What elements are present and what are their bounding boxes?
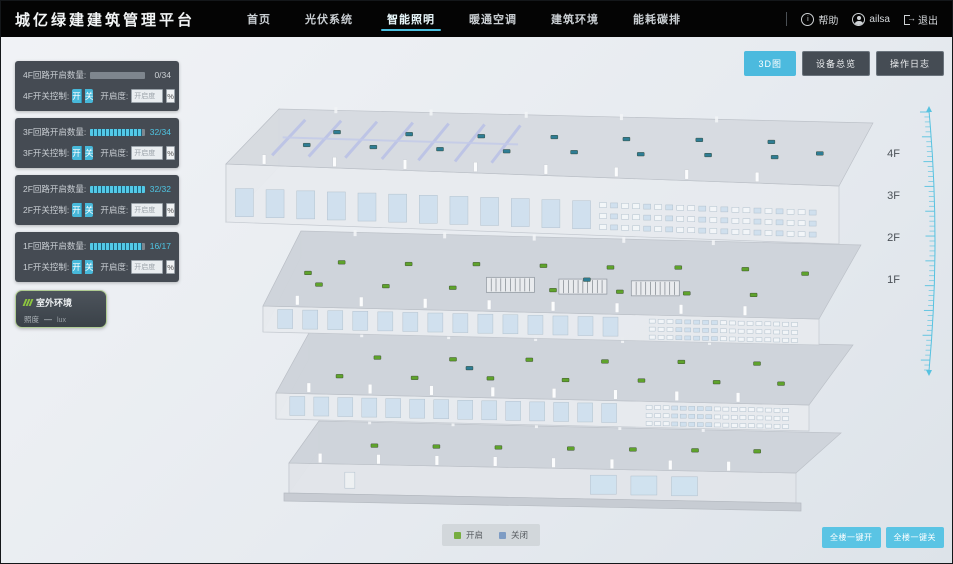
illuminance-label: 照度 [24,314,39,325]
dim-percent-button[interactable]: % [166,89,175,103]
bulk-action-button[interactable]: 全楼一键开 [822,527,881,548]
dim-level-label: 开启度: [100,261,128,273]
nav-item-label: 首页 [247,11,271,27]
outdoor-environment-icon [24,299,32,306]
logout-icon [904,14,914,24]
bulk-action-label: 全楼一键关 [894,533,937,542]
switch-control-label: 4F开关控制: [23,90,69,102]
dim-level-input[interactable] [131,89,163,103]
nav-divider [786,12,787,26]
dim-percent-button[interactable]: % [166,203,175,217]
user-avatar-icon [852,13,865,26]
circuit-progress-bar [90,243,145,250]
circuit-count-label: 3F回路开启数量: [23,126,86,138]
floor-panel: 3F回路开启数量: 32/34 3F开关控制: 开 关 开启度: % [15,118,179,168]
legend-label: 关闭 [511,529,528,541]
dim-level-input[interactable] [131,260,163,274]
floor-zoom-ruler[interactable] [916,105,942,377]
building-3d-view[interactable] [201,73,901,543]
dim-level-input[interactable] [131,146,163,160]
outdoor-environment-panel: 室外环境 照度 — lux [15,290,107,328]
help-link[interactable]: i 帮助 [801,12,838,27]
floor-control-panels: 4F回路开启数量: 0/34 4F开关控制: 开 关 开启度: % 3F回路开启… [15,61,179,289]
nav-item[interactable]: 首页 [247,1,271,37]
floor-off-button[interactable]: 关 [85,260,94,274]
circuit-count-value: 16/17 [149,241,171,251]
dim-percent-button[interactable]: % [166,146,175,160]
top-nav: 城亿绿建建筑管理平台 首页 光伏系统 智能照明 暖通空调 [1,1,952,37]
floor-on-button[interactable]: 开 [72,89,82,103]
floor-off-button[interactable]: 关 [85,203,94,217]
circuit-progress-fill [90,129,141,136]
nav-user-area: i 帮助 ailsa 退出 [786,12,938,27]
floor-off-button[interactable]: 关 [85,146,94,160]
help-icon: i [801,13,814,26]
circuit-count-label: 4F回路开启数量: [23,69,86,81]
view-toggle-button[interactable]: 3D图 [744,51,796,76]
legend-label: 开启 [466,529,483,541]
switch-control-label: 2F开关控制: [23,204,69,216]
bulk-action-button[interactable]: 全楼一键关 [886,527,945,548]
bulk-actions: 全楼一键开 全楼一键关 [822,527,944,548]
legend: 开启 关闭 [442,524,540,546]
floor-axis-label: 3F [887,190,900,202]
circuit-progress-fill [90,186,145,193]
legend-swatch [454,532,461,539]
logout-link[interactable]: 退出 [904,12,938,27]
view-toggle-button[interactable]: 操作日志 [876,51,944,76]
view-toggle-label: 3D图 [758,59,782,69]
floor-axis-label: 4F [887,148,900,160]
circuit-count-value: 32/34 [149,127,171,137]
circuit-count-value: 0/34 [149,70,171,80]
nav-item[interactable]: 能耗碳排 [633,1,681,37]
dim-percent-button[interactable]: % [166,260,175,274]
circuit-progress-fill [90,243,141,250]
circuit-count-label: 2F回路开启数量: [23,183,86,195]
dim-level-label: 开启度: [100,147,128,159]
view-toggle-label: 操作日志 [890,59,930,69]
nav-item-label: 光伏系统 [305,11,353,27]
circuit-progress-bar [90,186,145,193]
view-toggle: 3D图 设备总览 操作日志 [744,51,944,76]
nav-menu: 首页 光伏系统 智能照明 暖通空调 建筑环境 能耗 [247,1,681,37]
nav-item-label: 智能照明 [387,11,435,27]
floor-axis-label: 1F [887,274,900,286]
legend-item: 开启 [454,529,483,541]
nav-item[interactable]: 暖通空调 [469,1,517,37]
legend-item: 关闭 [499,529,528,541]
nav-item-label: 建筑环境 [551,11,599,27]
floor-axis-labels: 4F3F2F1F [887,148,900,286]
building-3d-canvas [201,73,901,543]
user-link[interactable]: ailsa [852,13,890,26]
dim-level-label: 开启度: [100,90,128,102]
outdoor-environment-title: 室外环境 [36,296,72,309]
logout-label: 退出 [918,12,938,27]
help-label: 帮助 [818,12,838,27]
legend-swatch [499,532,506,539]
username: ailsa [869,14,890,25]
switch-control-label: 1F开关控制: [23,261,69,273]
nav-item[interactable]: 光伏系统 [305,1,353,37]
circuit-progress-bar [90,72,145,79]
circuit-count-label: 1F回路开启数量: [23,240,86,252]
floor-on-button[interactable]: 开 [72,146,82,160]
floor-panel: 2F回路开启数量: 32/32 2F开关控制: 开 关 开启度: % [15,175,179,225]
floor-on-button[interactable]: 开 [72,203,82,217]
view-toggle-button[interactable]: 设备总览 [802,51,870,76]
switch-control-label: 3F开关控制: [23,147,69,159]
floor-panel: 1F回路开启数量: 16/17 1F开关控制: 开 关 开启度: % [15,232,179,282]
floor-axis-label: 2F [887,232,900,244]
dim-level-label: 开启度: [100,204,128,216]
app-title: 城亿绿建建筑管理平台 [15,9,195,30]
view-toggle-label: 设备总览 [816,59,856,69]
nav-item[interactable]: 智能照明 [387,1,435,37]
circuit-count-value: 32/32 [149,184,171,194]
dim-level-input[interactable] [131,203,163,217]
illuminance-value: — [44,315,52,324]
floor-panel: 4F回路开启数量: 0/34 4F开关控制: 开 关 开启度: % [15,61,179,111]
nav-item[interactable]: 建筑环境 [551,1,599,37]
nav-item-label: 能耗碳排 [633,11,681,27]
floor-on-button[interactable]: 开 [72,260,82,274]
illuminance-unit: lux [57,317,66,324]
circuit-progress-bar [90,129,145,136]
app-window: 城亿绿建建筑管理平台 首页 光伏系统 智能照明 暖通空调 [0,0,953,564]
nav-item-label: 暖通空调 [469,11,517,27]
bulk-action-label: 全楼一键开 [830,533,873,542]
floor-off-button[interactable]: 关 [85,89,94,103]
